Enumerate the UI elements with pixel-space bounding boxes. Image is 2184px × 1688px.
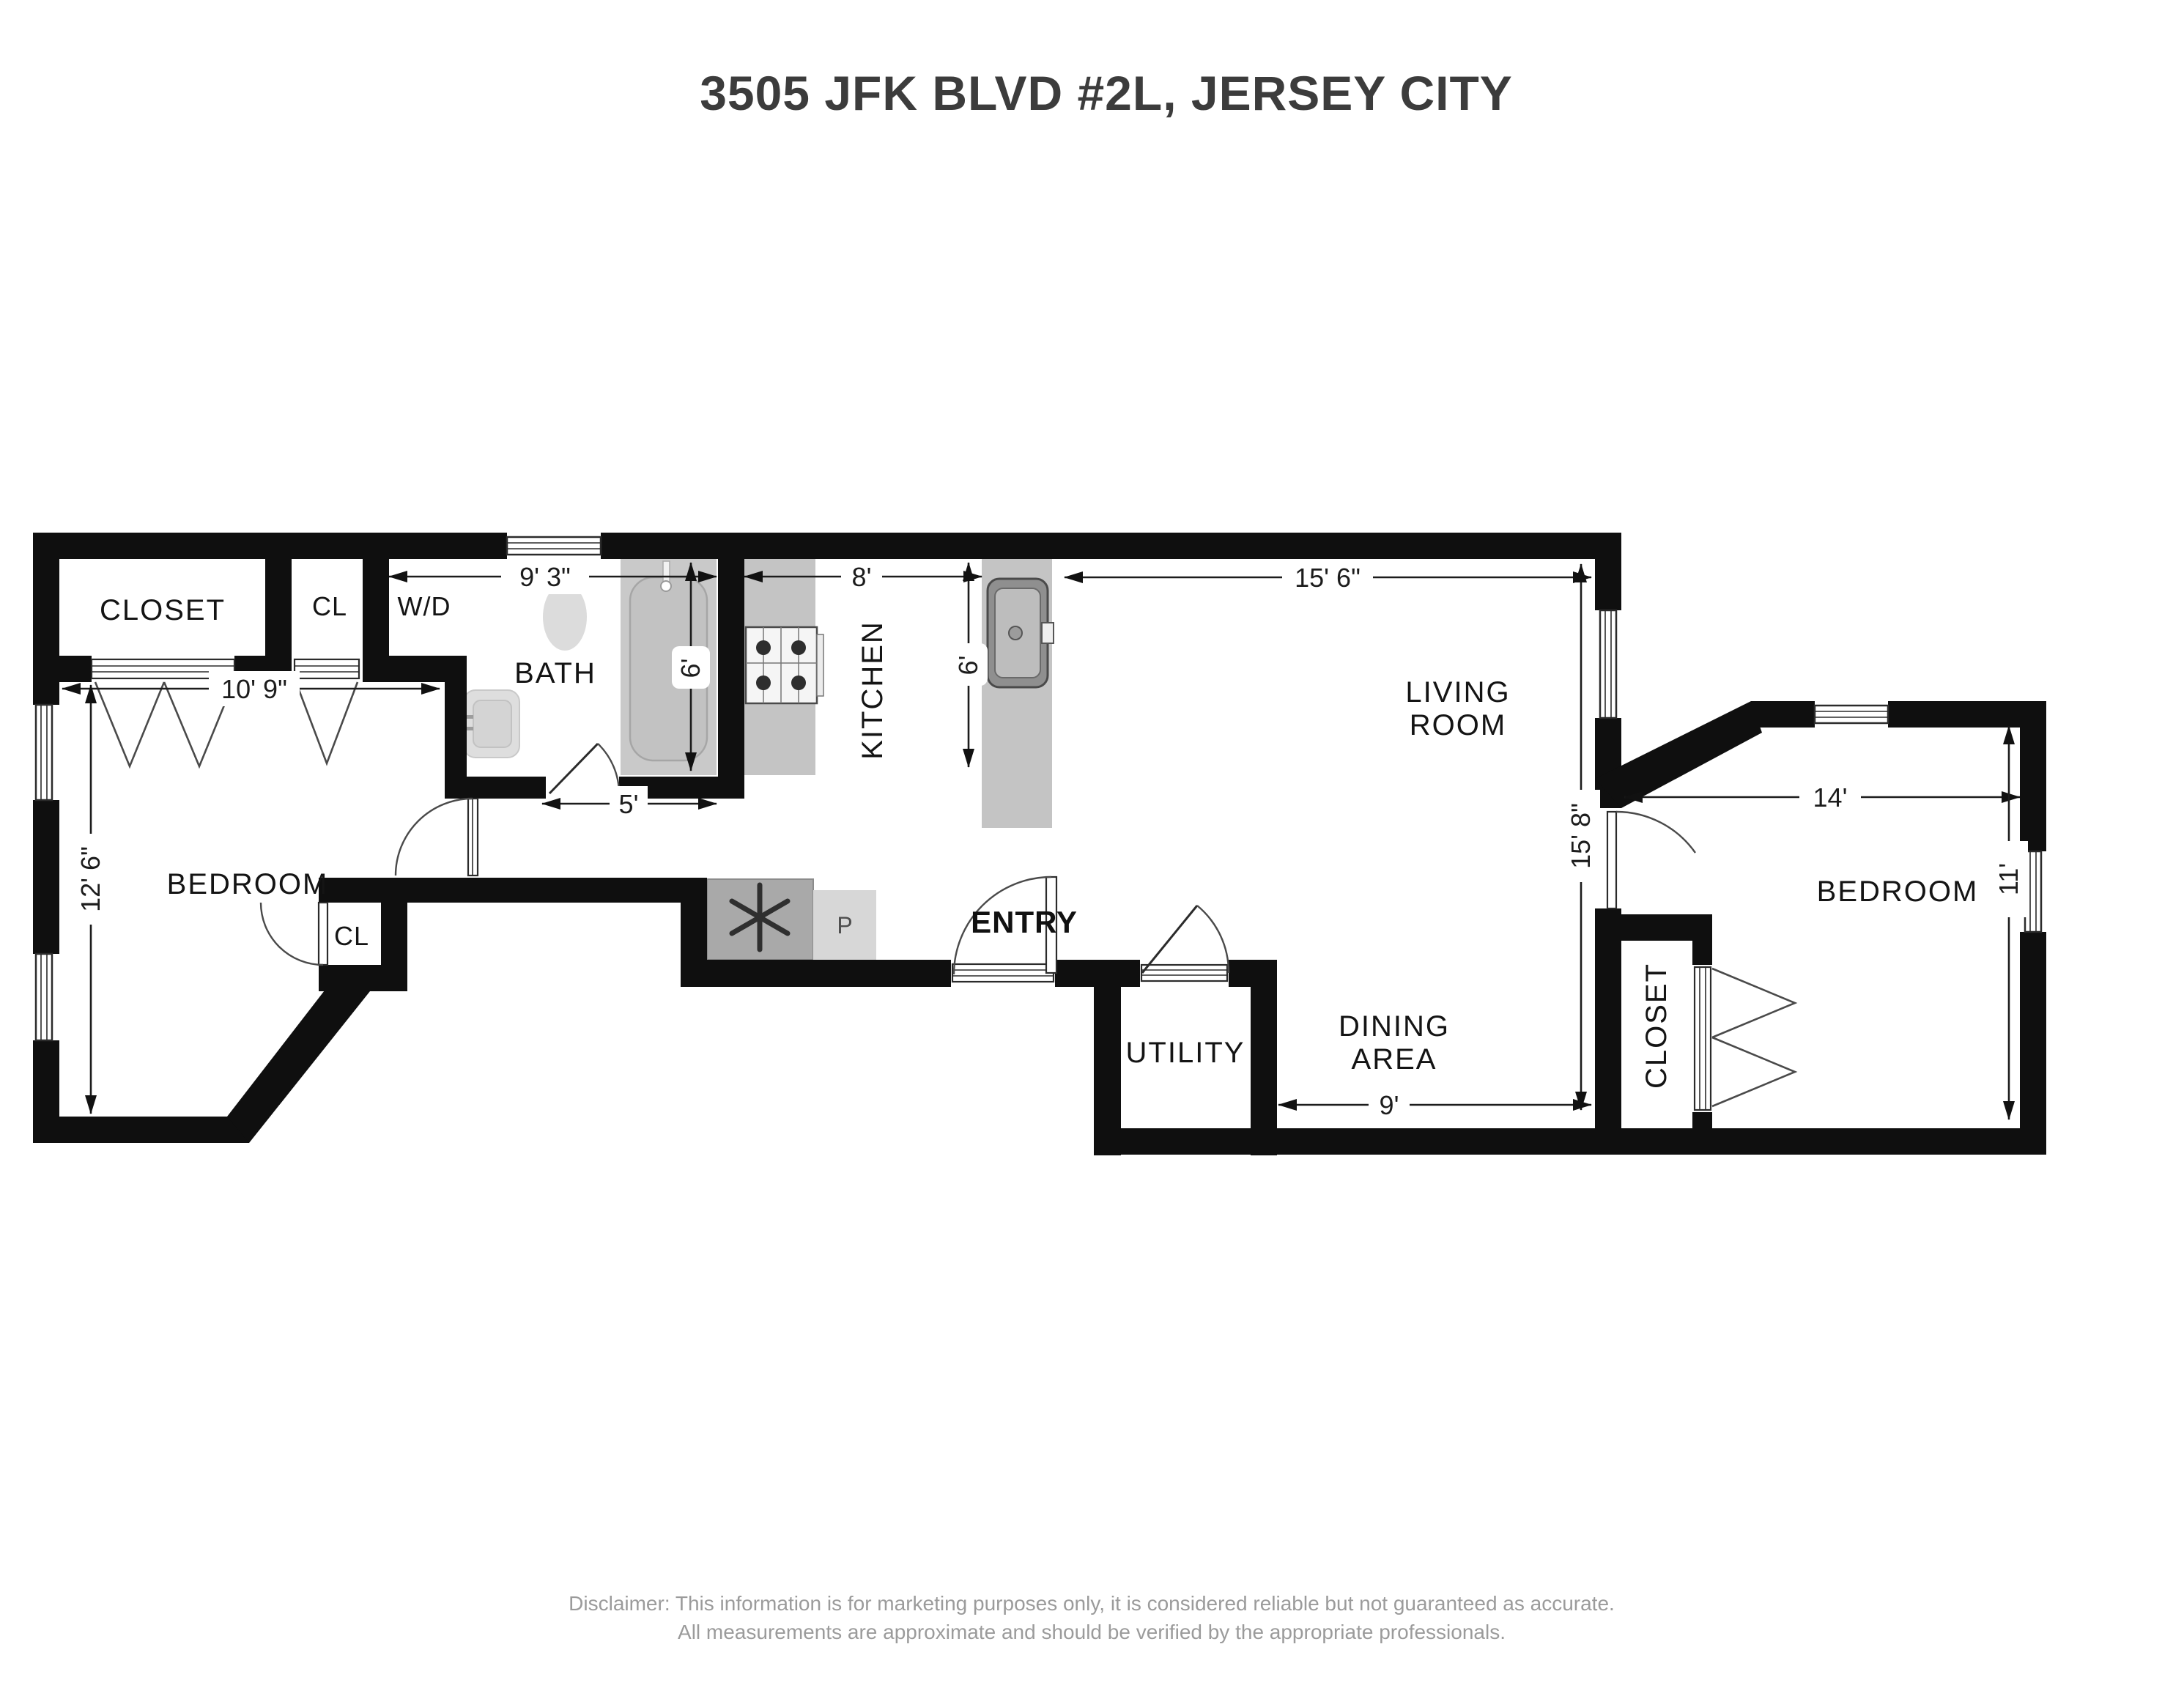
wall-segment <box>1595 559 1621 610</box>
wall-segment <box>319 878 707 903</box>
window <box>1600 610 1616 718</box>
wall-segment <box>681 960 951 987</box>
wall-diagonal <box>227 965 370 1143</box>
room-label-utility: UTILITY <box>1126 1037 1245 1069</box>
wall-segment <box>445 656 467 799</box>
room-label-living-1: LIVING <box>1405 676 1510 708</box>
dimension-label: 5' <box>619 789 639 819</box>
disclaimer-line-2: All measurements are approximate and sho… <box>678 1621 1506 1643</box>
room-label-cl-bedroom: CL <box>334 921 369 951</box>
room-label-closet-top: CLOSET <box>100 594 226 626</box>
wall-segment <box>265 559 292 682</box>
bath-sink-icon <box>464 690 519 758</box>
dimension-living-depth: 15' 8" <box>1562 564 1600 1110</box>
wall-segment <box>33 800 59 954</box>
utility-door <box>1141 906 1229 981</box>
wall-segment <box>33 533 507 559</box>
dimension-label: 9' <box>1380 1090 1399 1120</box>
bedroom-left-door <box>396 799 478 876</box>
room-label-dining-1: DINING <box>1339 1010 1450 1043</box>
window <box>36 705 52 800</box>
wall-segment <box>467 777 546 799</box>
room-label-entry: ENTRY <box>971 905 1078 939</box>
wall-segment <box>718 559 744 799</box>
floor-plan-canvas: 3505 JFK BLVD #2L, JERSEY CITY P <box>0 0 2184 1688</box>
room-label-bedroom-right: BEDROOM <box>1817 876 1979 908</box>
wall-segment <box>33 559 59 705</box>
wall-segment <box>1621 914 1712 941</box>
closet-right-bifold <box>1695 967 1795 1110</box>
dimension-label: 8' <box>852 562 872 592</box>
stove-icon <box>746 627 823 703</box>
dimension-label: 15' 6" <box>1295 563 1361 593</box>
dimension-label: 10' 9" <box>221 674 287 704</box>
room-label-kitchen: KITCHEN <box>856 621 889 760</box>
bedroom-right-door <box>1607 812 1695 908</box>
dimension-label: 15' 8" <box>1566 803 1596 869</box>
wall-segment <box>1251 960 1277 1155</box>
closet-cl-door <box>261 903 327 965</box>
dimension-label: 11' <box>1994 863 2024 895</box>
wall-segment <box>1692 1112 1712 1131</box>
dimension-label: 6' <box>675 659 706 678</box>
wall-segment <box>601 533 1621 559</box>
room-label-dining-2: AREA <box>1352 1043 1437 1076</box>
wall-segment <box>1595 908 1621 1128</box>
wall-segment <box>2020 932 2046 1155</box>
wall-segment <box>381 903 407 965</box>
room-label-bedroom-left: BEDROOM <box>167 868 329 900</box>
wall-segment <box>1751 701 1815 728</box>
dimension-living-width: 15' 6" <box>1065 560 1591 595</box>
window <box>507 537 601 555</box>
dimension-label: 12' 6" <box>75 846 106 912</box>
wall-segment <box>1692 941 1712 965</box>
pantry-label: P <box>837 912 852 939</box>
sink-icon <box>988 579 1054 687</box>
room-label-wd: W/D <box>398 591 451 621</box>
wall-segment <box>1094 1128 2046 1155</box>
room-label-cl-top: CL <box>312 591 347 621</box>
window <box>1815 706 1888 723</box>
wall-segment <box>319 965 407 991</box>
wall-segment <box>33 1117 249 1143</box>
cl-top-bifold <box>295 659 359 763</box>
wall-segment <box>2020 701 2046 851</box>
window <box>36 954 52 1040</box>
dimension-label: 14' <box>1813 782 1848 812</box>
disclaimer-line-1: Disclaimer: This information is for mark… <box>569 1592 1615 1615</box>
page-title: 3505 JFK BLVD #2L, JERSEY CITY <box>700 66 1513 120</box>
dimension-bedroom-left-depth: 12' 6" <box>72 685 110 1114</box>
dimension-dining-width: 9' <box>1278 1087 1591 1122</box>
room-label-closet-right: CLOSET <box>1640 963 1673 1089</box>
dimension-bedroom-right-width: 14' <box>1624 780 2020 815</box>
dimension-label: 6' <box>953 656 983 675</box>
dimension-label: 9' 3" <box>519 562 571 592</box>
room-label-living-2: ROOM <box>1410 709 1506 741</box>
wall-segment <box>59 656 92 682</box>
bath-door <box>549 744 619 793</box>
room-label-bath: BATH <box>514 657 596 689</box>
wall-segment <box>1094 960 1121 1155</box>
